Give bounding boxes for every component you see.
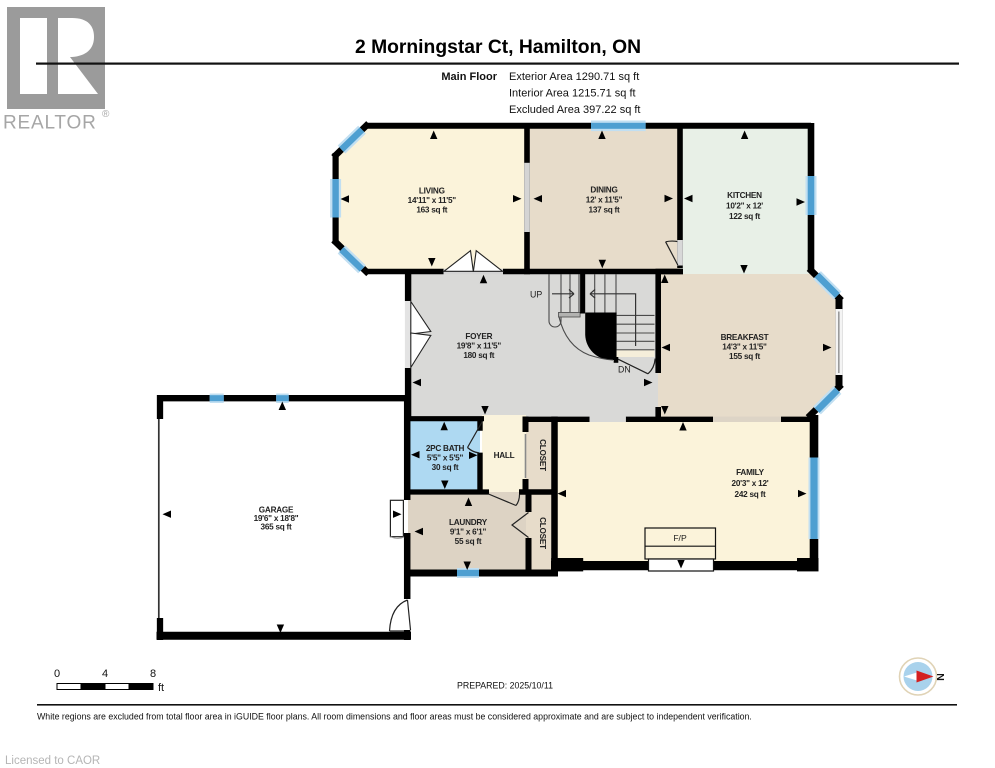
svg-text:Interior Area 1215.71 sq ft: Interior Area 1215.71 sq ft <box>509 88 636 100</box>
svg-text:180 sq ft: 180 sq ft <box>463 351 494 360</box>
svg-text:55 sq ft: 55 sq ft <box>455 537 482 546</box>
svg-text:8: 8 <box>150 668 156 680</box>
svg-text:CLOSET: CLOSET <box>538 517 547 549</box>
svg-text:PREPARED: 2025/10/11: PREPARED: 2025/10/11 <box>457 681 553 691</box>
svg-text:Main Floor: Main Floor <box>441 71 497 83</box>
svg-text:12' x 11'5": 12' x 11'5" <box>586 196 623 205</box>
svg-text:Excluded Area 397.22 sq ft: Excluded Area 397.22 sq ft <box>509 104 640 116</box>
svg-text:N: N <box>934 673 946 681</box>
svg-text:19'8" x 11'5": 19'8" x 11'5" <box>457 342 502 351</box>
svg-text:KITCHEN: KITCHEN <box>727 191 762 200</box>
svg-text:UP: UP <box>530 290 542 300</box>
svg-text:DINING: DINING <box>590 186 617 195</box>
svg-text:White regions are excluded fro: White regions are excluded from total fl… <box>37 712 752 722</box>
svg-text:REALTOR: REALTOR <box>3 113 97 134</box>
svg-text:14'3" x 11'5": 14'3" x 11'5" <box>722 343 767 352</box>
svg-text:Licensed to CAOR: Licensed to CAOR <box>5 755 100 767</box>
svg-text:HALL: HALL <box>494 451 515 460</box>
svg-text:ft: ft <box>158 682 164 694</box>
svg-text:CLOSET: CLOSET <box>538 439 547 471</box>
svg-text:0: 0 <box>54 668 60 680</box>
svg-text:365 sq ft: 365 sq ft <box>261 523 292 532</box>
svg-text:LIVING: LIVING <box>419 187 445 196</box>
svg-text:10'2" x 12': 10'2" x 12' <box>726 202 763 211</box>
svg-text:30 sq ft: 30 sq ft <box>432 463 459 472</box>
svg-text:5'5" x 5'5": 5'5" x 5'5" <box>427 454 464 463</box>
svg-text:F/P: F/P <box>673 533 687 543</box>
svg-text:FAMILY: FAMILY <box>736 468 765 477</box>
svg-text:20'3" x 12': 20'3" x 12' <box>732 479 769 488</box>
svg-text:BREAKFAST: BREAKFAST <box>721 333 769 342</box>
svg-text:LAUNDRY: LAUNDRY <box>449 518 488 527</box>
svg-text:122 sq ft: 122 sq ft <box>729 212 760 221</box>
svg-text:137 sq ft: 137 sq ft <box>589 206 620 215</box>
svg-text:Exterior Area 1290.71 sq ft: Exterior Area 1290.71 sq ft <box>509 71 639 83</box>
svg-text:163 sq ft: 163 sq ft <box>416 206 447 215</box>
svg-text:2 Morningstar Ct, Hamilton, ON: 2 Morningstar Ct, Hamilton, ON <box>355 37 641 58</box>
svg-text:14'11" x 11'5": 14'11" x 11'5" <box>408 196 457 205</box>
svg-text:9'1" x 6'1": 9'1" x 6'1" <box>450 528 487 537</box>
svg-text:2PC BATH: 2PC BATH <box>426 444 465 453</box>
svg-text:FOYER: FOYER <box>465 332 492 341</box>
svg-text:4: 4 <box>102 668 108 680</box>
svg-text:DN: DN <box>618 365 631 375</box>
svg-text:155 sq ft: 155 sq ft <box>729 352 760 361</box>
svg-text:®: ® <box>102 109 110 120</box>
svg-text:242 sq ft: 242 sq ft <box>735 490 766 499</box>
